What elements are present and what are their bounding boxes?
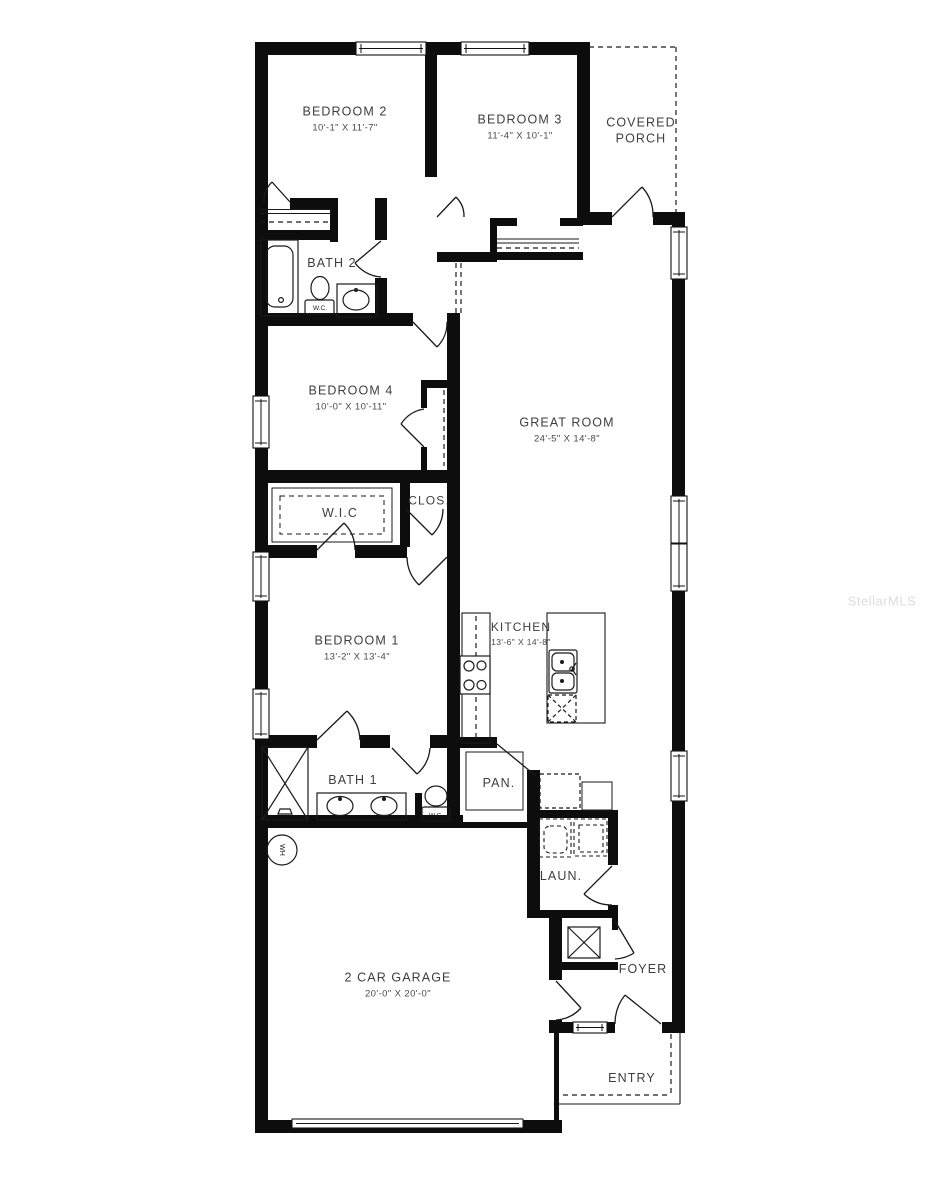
room-label-kitchen: KITCHEN 13'-6" X 14'-8": [491, 620, 551, 648]
room-label-bedroom2: BEDROOM 2 10'-1" X 11'-7": [303, 104, 388, 134]
room-label-garage: 2 CAR GARAGE 20'-0" X 20'-0": [345, 970, 452, 1000]
wall: [437, 252, 497, 262]
door-swing: [406, 509, 443, 535]
room-name: BATH 1: [328, 773, 377, 787]
room-label-bedroom4: BEDROOM 4 10'-0" X 10'-11": [309, 383, 394, 413]
room-label-laundry: LAUN.: [540, 869, 582, 885]
room-name: 2 CAR GARAGE: [345, 970, 452, 984]
window: [461, 42, 529, 55]
water-heater-icon: WH: [267, 835, 297, 865]
door-opening: [612, 212, 653, 225]
room-label-great-room: GREAT ROOM 24'-5" X 14'-8": [519, 415, 614, 445]
door-opening: [317, 735, 360, 748]
room-label-pantry: PAN.: [483, 776, 516, 792]
room-name: LAUN.: [540, 869, 582, 883]
wall: [490, 218, 497, 258]
room-name: BATH 2: [307, 256, 356, 270]
door-swing: [392, 748, 430, 774]
toilet-icon: W.C.: [305, 277, 334, 315]
room-label-covered-porch: COVERED PORCH: [599, 115, 683, 146]
closet-shelf-bedroom2: [260, 210, 331, 214]
room-label-bath2: BATH 2: [307, 256, 356, 272]
door-swing: [497, 744, 536, 776]
room-dims: 10'-0" X 10'-11": [309, 401, 394, 413]
room-name: ENTRY: [608, 1071, 656, 1085]
room-name: BEDROOM 4: [309, 383, 394, 397]
window: [253, 396, 269, 448]
room-dims: 20'-0" X 20'-0": [345, 988, 452, 1000]
wall: [463, 822, 527, 828]
room-dims: 24'-5" X 14'-8": [519, 433, 614, 445]
window: [671, 751, 687, 801]
watermark: StellarMLS: [848, 594, 917, 609]
closet-shelf-bedroom3: [497, 239, 579, 243]
wall: [558, 962, 618, 970]
room-label-bath1: BATH 1: [328, 773, 377, 789]
wall: [554, 1033, 559, 1120]
window: [573, 1022, 607, 1033]
wall: [540, 810, 613, 818]
room-label-wic: W.I.C: [322, 506, 358, 522]
wall: [255, 230, 337, 240]
shower-icon: [262, 747, 308, 820]
fixtures-layer: W.C.: [260, 210, 680, 1129]
room-name: KITCHEN: [491, 620, 551, 634]
room-label-foyer: FOYER: [619, 962, 668, 978]
wc-label: W.C.: [313, 305, 327, 312]
door-swing: [615, 995, 661, 1024]
window: [671, 227, 687, 279]
room-name: CLOS.: [408, 494, 450, 508]
kitchen-island: [547, 613, 605, 723]
room-label-bedroom3: BEDROOM 3 11'-4" X 10'-1": [478, 112, 563, 142]
room-name: COVERED PORCH: [606, 115, 676, 145]
kitchen-sink-icon: [549, 650, 577, 693]
door-swing: [615, 921, 634, 959]
door-swing: [413, 322, 447, 347]
room-label-bedroom1: BEDROOM 1 13'-2" X 13'-4": [315, 633, 400, 663]
room-dims: 10'-1" X 11'-7": [303, 122, 388, 134]
windows-layer: [253, 42, 687, 1033]
room-dims: 13'-2" X 13'-4": [315, 651, 400, 663]
wall: [672, 215, 685, 1033]
room-dims: 13'-6" X 14'-8": [491, 637, 551, 648]
door-swing: [437, 197, 464, 217]
wall: [527, 770, 540, 918]
garage-door: [292, 1119, 523, 1128]
room-name: W.I.C: [322, 506, 358, 520]
door-opening: [608, 865, 618, 905]
wall: [255, 470, 459, 483]
stove-icon: [460, 656, 490, 694]
room-name: BEDROOM 2: [303, 104, 388, 118]
entry-slab-edge: [558, 1033, 680, 1104]
wall: [255, 313, 413, 326]
window: [671, 496, 687, 591]
wall: [577, 42, 590, 225]
room-label-closet: CLOS.: [408, 494, 450, 509]
door-opening: [421, 408, 427, 447]
foyer-closet-box: [568, 927, 600, 958]
room-label-entry: ENTRY: [608, 1071, 656, 1087]
wall: [425, 55, 437, 177]
wall: [540, 910, 617, 918]
wall: [490, 252, 583, 260]
refrigerator-icon: [540, 774, 580, 808]
floor-plan-drawing: W.C.: [0, 0, 927, 1200]
room-name: PAN.: [483, 776, 516, 790]
floor-plan-page: W.C.: [0, 0, 927, 1200]
door-opening: [517, 218, 560, 226]
dishwasher-icon: [548, 695, 576, 722]
window: [253, 689, 269, 739]
door-opening: [317, 545, 355, 558]
room-name: FOYER: [619, 962, 668, 976]
door-swing: [401, 409, 424, 447]
room-dims: 11'-4" X 10'-1": [478, 130, 563, 142]
counter-cabinet: [582, 782, 612, 810]
window: [356, 42, 426, 55]
door-opening: [615, 1022, 662, 1033]
room-name: BEDROOM 3: [478, 112, 563, 126]
door-opening: [375, 240, 387, 278]
water-heater-label: WH: [278, 844, 285, 856]
door-swing: [584, 866, 612, 905]
room-name: BEDROOM 1: [315, 633, 400, 647]
wc-label: W.C.: [429, 813, 443, 820]
room-name: GREAT ROOM: [519, 415, 614, 429]
door-opening: [390, 735, 430, 748]
wall: [447, 313, 460, 828]
door-swing: [407, 557, 447, 585]
sink-icon: [337, 284, 377, 317]
washer-dryer-icons: [539, 819, 607, 857]
window: [253, 552, 269, 601]
